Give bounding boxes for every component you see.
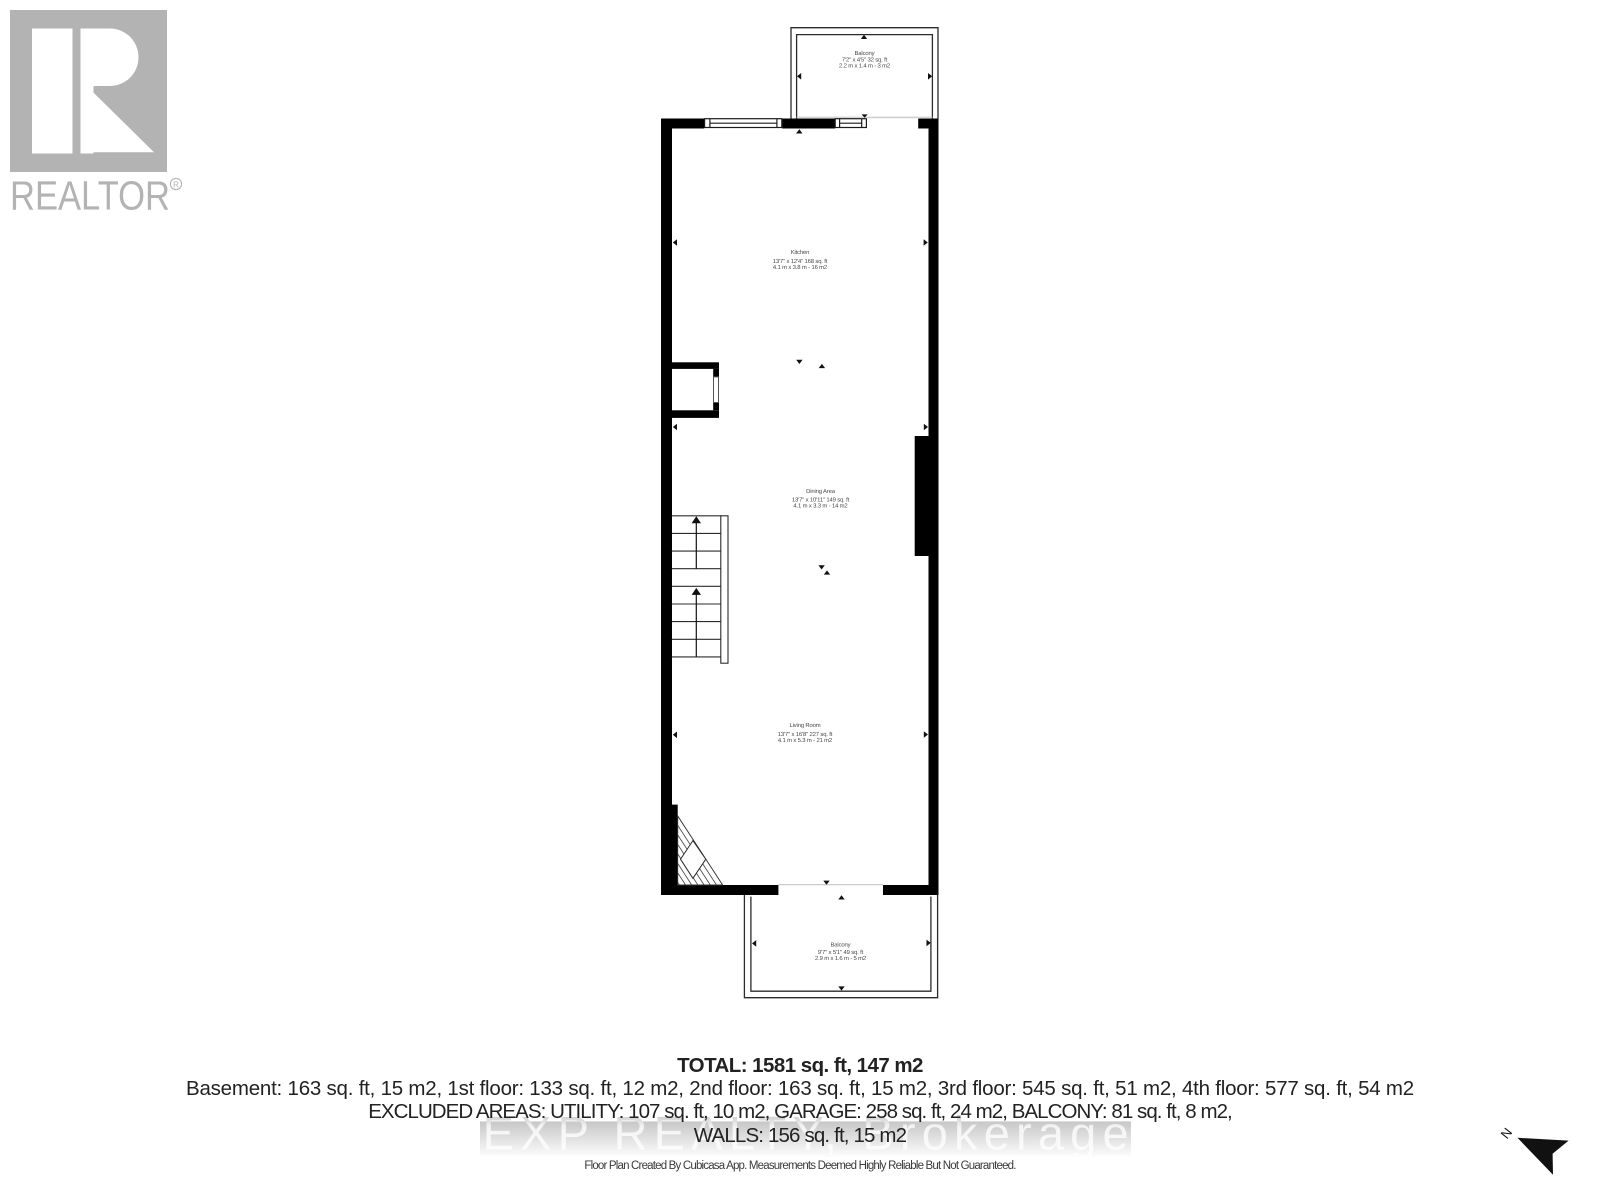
svg-text:4.1 m x 5.3 m - 21 m2: 4.1 m x 5.3 m - 21 m2 [778, 737, 832, 744]
svg-text:2.2 m x 1.4 m - 3 m2: 2.2 m x 1.4 m - 3 m2 [839, 63, 890, 70]
svg-text:Balcony: Balcony [831, 942, 851, 949]
svg-text:Kitchen: Kitchen [791, 249, 810, 256]
svg-text:2.9 m x 1.6 m - 5 m2: 2.9 m x 1.6 m - 5 m2 [815, 955, 866, 962]
svg-text:Living Room: Living Room [789, 722, 820, 729]
svg-text:4.1 m x 3.3 m - 14 m2: 4.1 m x 3.3 m - 14 m2 [793, 503, 847, 510]
svg-text:Dining Area: Dining Area [806, 488, 836, 495]
svg-text:4.1 m x 3.8 m - 16 m2: 4.1 m x 3.8 m - 16 m2 [773, 264, 827, 271]
svg-text:13'7" x 12'4" 168 sq. ft: 13'7" x 12'4" 168 sq. ft [773, 258, 828, 265]
svg-text:7'2" x 4'5" 32 sq. ft: 7'2" x 4'5" 32 sq. ft [842, 56, 888, 63]
svg-text:R: R [173, 181, 179, 190]
svg-text:REALTOR: REALTOR [10, 173, 170, 219]
svg-text:Balcony: Balcony [855, 50, 875, 57]
